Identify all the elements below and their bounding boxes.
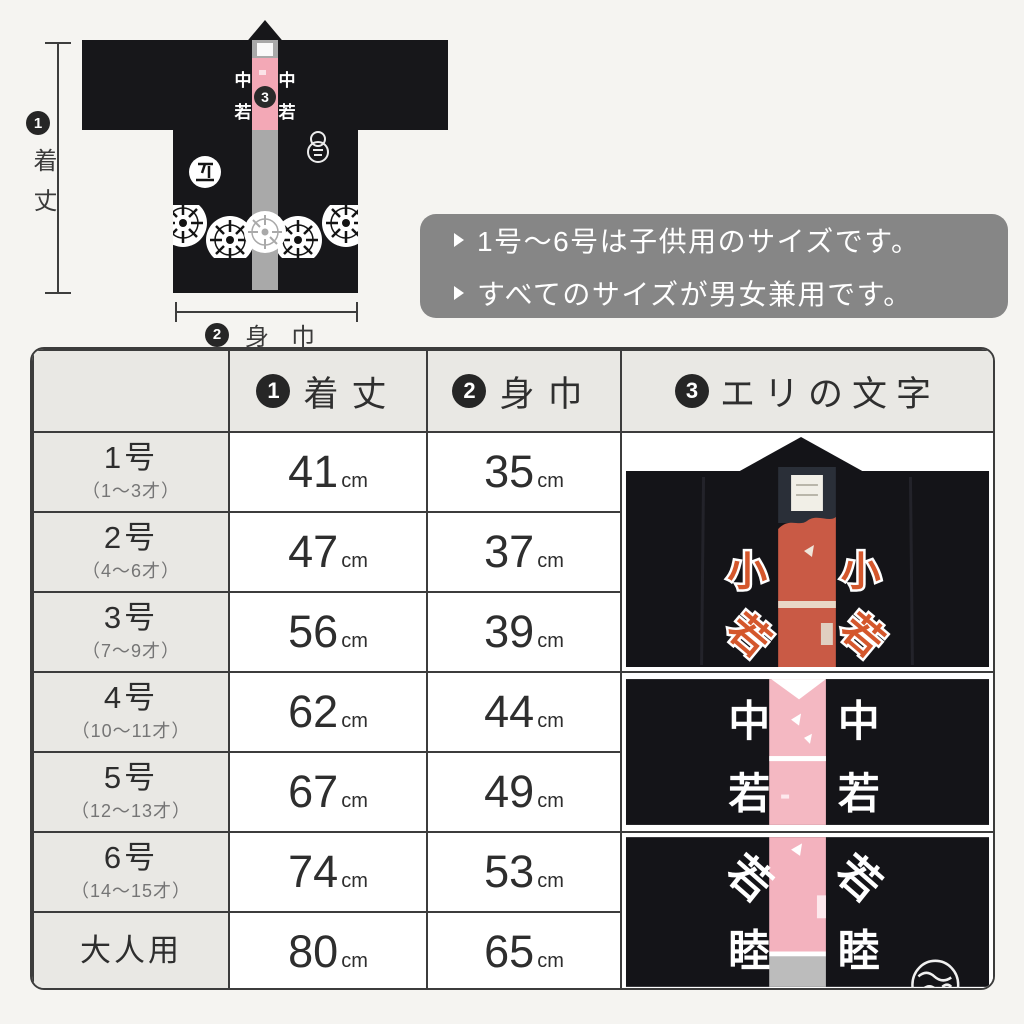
unit-label: cm — [341, 470, 368, 493]
size-age: （10～11才） — [72, 717, 191, 743]
header-marker-3: 3 — [675, 374, 709, 408]
width-value: 35 — [484, 446, 534, 498]
unit-label: cm — [537, 950, 564, 973]
length-value-cell: 47cm — [229, 512, 427, 592]
unit-label: cm — [341, 550, 368, 573]
unit-label: cm — [537, 630, 564, 653]
bullet-triangle-icon — [454, 286, 464, 300]
sample1-char-top-left: 小 — [727, 550, 767, 594]
size-name: 5号 — [104, 761, 158, 795]
sample2-char-top-right: 中 — [838, 697, 880, 744]
chest-crest-icon — [189, 156, 221, 188]
size-label-cell: 4号 （10～11才） — [33, 672, 229, 752]
length-label: 着丈 — [25, 148, 60, 228]
size-table: 1 着丈 2 身巾 3 エリの文字 1号 （1～3才） 41cm — [30, 347, 995, 990]
sample2-char-bottom-left: 若 — [728, 770, 770, 817]
header-empty-cell — [33, 350, 229, 432]
table-row: 4号 （10～11才） 62cm 44cm 中 若 — [33, 672, 994, 752]
size-age: （12～13才） — [71, 797, 191, 823]
size-label-cell: 5号 （12～13才） — [33, 752, 229, 832]
unit-label: cm — [341, 630, 368, 653]
length-value: 74 — [288, 846, 338, 898]
size-age: （14～15才） — [71, 877, 191, 903]
collar-char-left-bottom: 若 — [234, 102, 252, 122]
size-name: 4号 — [104, 681, 158, 715]
note-text-2: すべてのサイズが男女兼用です。 — [477, 273, 913, 313]
sample3-char-bottom-right: 睦 — [838, 927, 880, 976]
size-name: 6号 — [104, 841, 158, 875]
header-width-label: 身巾 — [499, 366, 595, 417]
collar-char-right-top: 中 — [279, 70, 296, 90]
size-label-cell: 2号 （4～6才） — [33, 512, 229, 592]
size-age: （1～3才） — [82, 477, 180, 503]
size-name: 2号 — [104, 521, 158, 555]
length-value: 56 — [288, 606, 338, 658]
unit-label: cm — [341, 950, 368, 973]
length-value: 80 — [288, 926, 338, 978]
width-value: 53 — [484, 846, 534, 898]
header-collar: 3 エリの文字 — [621, 350, 994, 432]
notes-box: 1号～6号は子供用のサイズです。 すべてのサイズが男女兼用です。 — [420, 214, 1008, 318]
width-value-cell: 39cm — [427, 592, 621, 672]
length-value: 67 — [288, 766, 338, 818]
collar-char-right-bottom: 若 — [278, 102, 296, 122]
table-row: 1号 （1～3才） 41cm 35cm — [33, 432, 994, 512]
unit-label: cm — [341, 710, 368, 733]
size-name: 3号 — [104, 601, 158, 635]
width-value-cell: 53cm — [427, 832, 621, 912]
size-chart-page: { "diagram": { "marker_length": "1", "ma… — [0, 0, 1024, 1024]
length-value-cell: 80cm — [229, 912, 427, 990]
length-value-cell: 62cm — [229, 672, 427, 752]
width-value-cell: 35cm — [427, 432, 621, 512]
length-value: 62 — [288, 686, 338, 738]
note-line-1: 1号～6号は子供用のサイズです。 — [454, 220, 1008, 260]
marker-2-badge: 2 — [205, 323, 229, 347]
header-width: 2 身巾 — [427, 350, 621, 432]
collar-tag — [257, 43, 273, 56]
collar-sample-2-image: 中 若 中 若 — [622, 673, 993, 831]
sample2-char-top-left: 中 — [728, 697, 770, 744]
width-value-cell: 44cm — [427, 672, 621, 752]
width-value-cell: 65cm — [427, 912, 621, 990]
size-label-cell: 大人用 — [33, 912, 229, 990]
unit-label: cm — [537, 870, 564, 893]
collar-sample-1-image: 小 若 小 若 — [622, 433, 993, 671]
length-value: 41 — [288, 446, 338, 498]
sample1-char-top-right: 小 — [841, 550, 881, 594]
unit-label: cm — [537, 470, 564, 493]
width-value-cell: 49cm — [427, 752, 621, 832]
note-text-1: 1号～6号は子供用のサイズです。 — [477, 220, 921, 260]
header-marker-1: 1 — [256, 374, 290, 408]
header-length: 1 着丈 — [229, 350, 427, 432]
happi-measure-diagram: 中 若 中 若 3 — [0, 0, 460, 345]
collar-char-left-top: 中 — [235, 70, 252, 90]
unit-label: cm — [341, 790, 368, 813]
length-value: 47 — [288, 526, 338, 578]
size-name: 1号 — [104, 441, 158, 475]
width-value: 37 — [484, 526, 534, 578]
bullet-triangle-icon — [454, 233, 464, 247]
width-value: 49 — [484, 766, 534, 818]
collar-photo-large: 若 睦 若 睦 — [621, 832, 994, 990]
length-value-cell: 56cm — [229, 592, 427, 672]
unit-label: cm — [341, 870, 368, 893]
header-length-label: 着丈 — [303, 366, 399, 417]
size-label-cell: 6号 （14～15才） — [33, 832, 229, 912]
sample3-char-bottom-left: 睦 — [728, 927, 770, 976]
table-header-row: 1 着丈 2 身巾 3 エリの文字 — [33, 350, 994, 432]
width-value: 39 — [484, 606, 534, 658]
unit-label: cm — [537, 710, 564, 733]
unit-label: cm — [537, 790, 564, 813]
length-value-cell: 67cm — [229, 752, 427, 832]
unit-label: cm — [537, 550, 564, 573]
svg-text:3: 3 — [261, 89, 269, 105]
sample2-char-bottom-right: 若 — [838, 770, 880, 817]
note-line-2: すべてのサイズが男女兼用です。 — [454, 273, 1008, 313]
size-age: （7～9才） — [82, 637, 180, 663]
marker-3-badge: 3 — [254, 86, 276, 108]
size-name: 大人用 — [80, 934, 182, 968]
table-row: 6号 （14～15才） 74cm 53cm 若 睦 若 — [33, 832, 994, 912]
size-label-cell: 3号 （7～9才） — [33, 592, 229, 672]
width-value: 65 — [484, 926, 534, 978]
length-value-cell: 41cm — [229, 432, 427, 512]
collar-photo-medium: 中 若 中 若 — [621, 672, 994, 832]
width-value: 44 — [484, 686, 534, 738]
marker-1-badge: 1 — [26, 111, 50, 135]
size-label-cell: 1号 （1～3才） — [33, 432, 229, 512]
size-age: （4～6才） — [82, 557, 180, 583]
happi-jacket-illustration: 中 若 中 若 3 — [82, 20, 448, 293]
length-value-cell: 74cm — [229, 832, 427, 912]
width-value-cell: 37cm — [427, 512, 621, 592]
collar-photo-small: 小 若 小 若 — [621, 432, 994, 672]
collar-sample-3-image: 若 睦 若 睦 — [622, 833, 993, 990]
header-collar-label: エリの文字 — [720, 366, 940, 417]
header-marker-2: 2 — [452, 374, 486, 408]
